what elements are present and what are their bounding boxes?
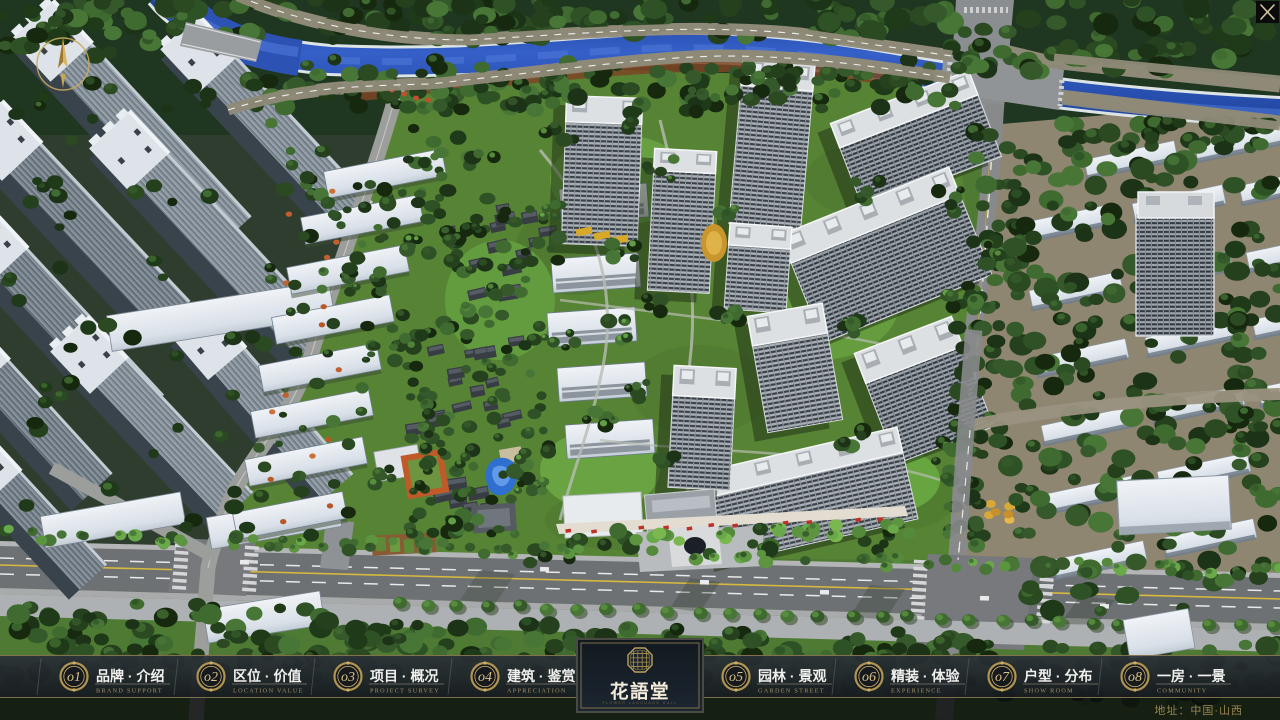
- svg-text:EXPERIENCE: EXPERIENCE: [891, 688, 942, 695]
- svg-text:区位 · 价值: 区位 · 价值: [233, 668, 301, 684]
- svg-text:品牌 · 介绍: 品牌 · 介绍: [96, 668, 164, 684]
- svg-text:精装 · 体验: 精装 · 体验: [891, 668, 960, 684]
- svg-text:花語堂: 花語堂: [610, 681, 670, 703]
- svg-text:o2: o2: [204, 670, 218, 685]
- svg-text:项目 · 概况: 项目 · 概况: [370, 668, 438, 684]
- svg-text:地址：中国·山西: 地址：中国·山西: [1154, 703, 1243, 717]
- svg-text:BRAND SUPPORT: BRAND SUPPORT: [96, 688, 163, 695]
- svg-text:PROJECT SURVEY: PROJECT SURVEY: [370, 688, 440, 695]
- svg-text:o7: o7: [995, 670, 1010, 685]
- svg-text:COMMUNITY: COMMUNITY: [1157, 688, 1208, 695]
- svg-text:FLOWER LANGUAGE HALL: FLOWER LANGUAGE HALL: [602, 701, 677, 705]
- svg-text:o4: o4: [478, 670, 492, 685]
- svg-text:APPRECIATION: APPRECIATION: [507, 688, 567, 695]
- svg-text:o8: o8: [1128, 670, 1142, 685]
- svg-text:o6: o6: [862, 670, 876, 685]
- svg-text:o1: o1: [67, 670, 81, 685]
- svg-text:LOCATION VALUE: LOCATION VALUE: [233, 688, 304, 695]
- svg-text:户型 · 分布: 户型 · 分布: [1024, 668, 1092, 684]
- svg-text:园林 · 景观: 园林 · 景观: [758, 668, 826, 684]
- svg-text:GARDEN STREET: GARDEN STREET: [758, 688, 825, 695]
- svg-text:建筑 · 鉴赏: 建筑 · 鉴赏: [507, 668, 575, 684]
- svg-text:SHOW ROOM: SHOW ROOM: [1024, 688, 1074, 695]
- svg-text:o5: o5: [729, 670, 743, 685]
- svg-text:o3: o3: [341, 670, 355, 685]
- svg-text:一房 · 一景: 一房 · 一景: [1157, 668, 1225, 684]
